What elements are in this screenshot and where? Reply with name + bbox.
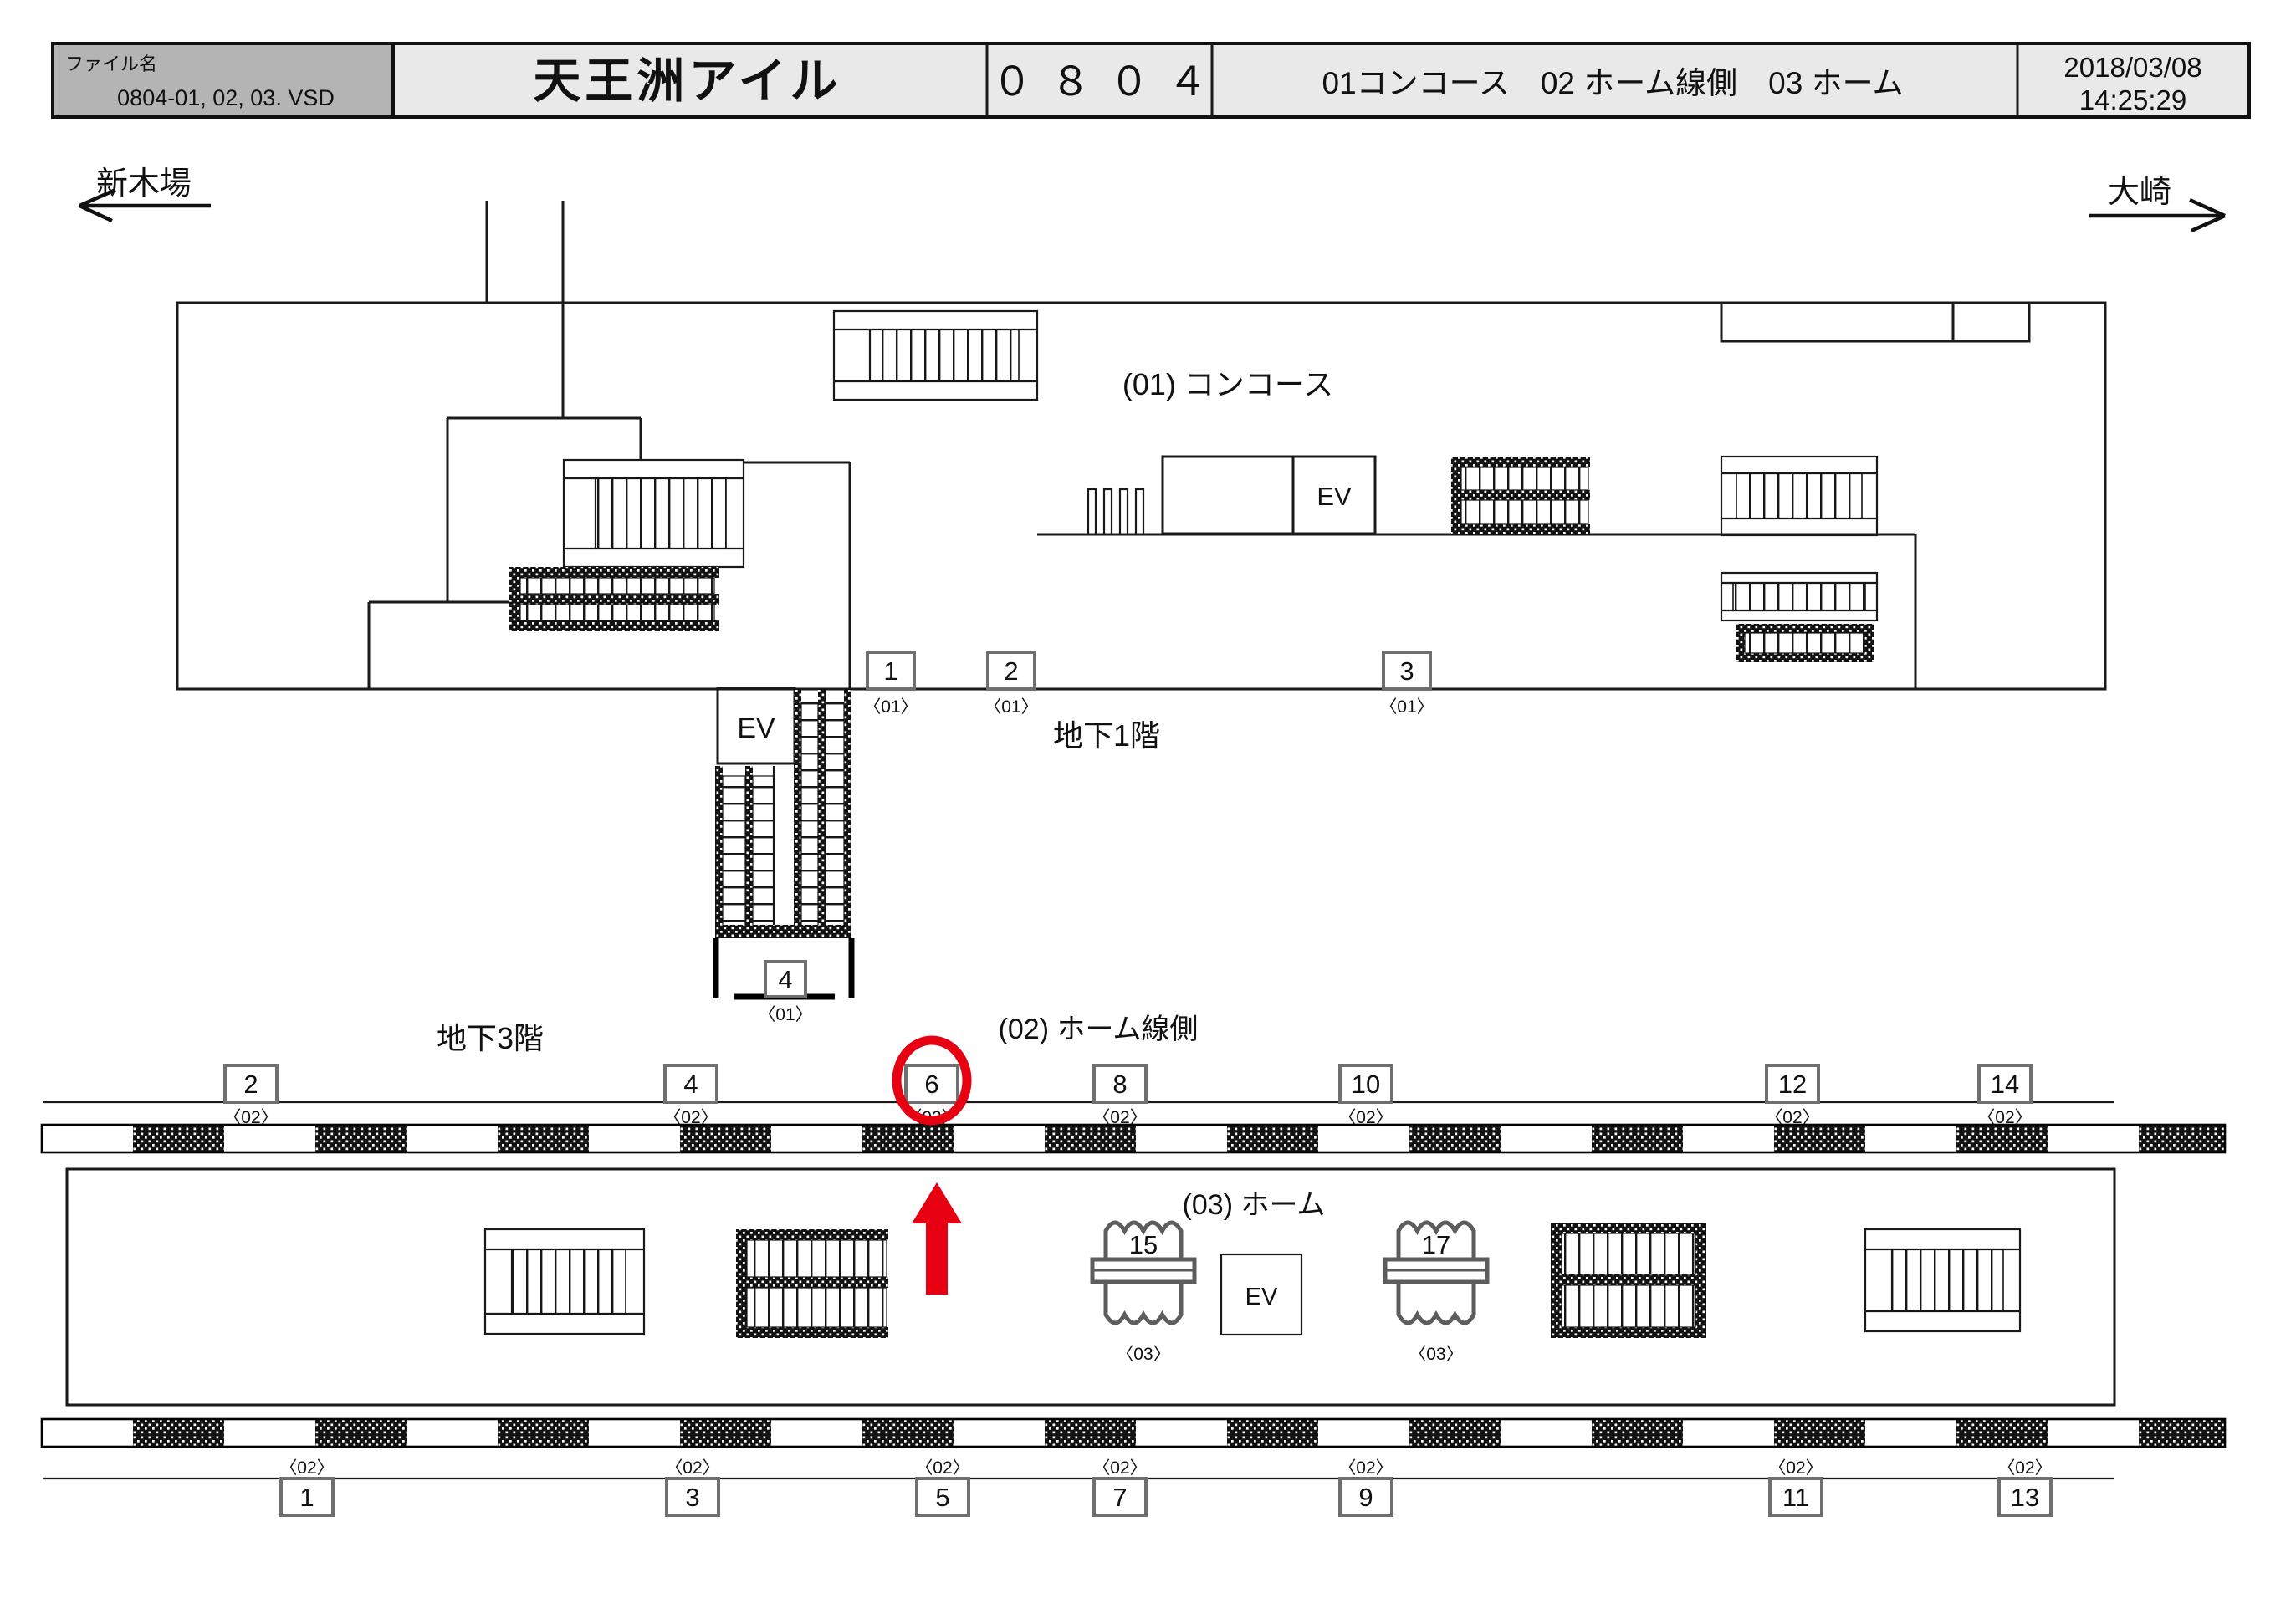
file-name-label: ファイル名	[65, 54, 157, 74]
marker-02-2: 2 〈02〉	[223, 1065, 278, 1127]
marker-02-8: 8 〈02〉	[1092, 1065, 1147, 1127]
svg-text:14: 14	[1991, 1070, 2019, 1099]
marker-02-14: 14 〈02〉	[1977, 1065, 2032, 1127]
svg-text:4: 4	[778, 965, 792, 994]
platform-escalator-right	[1551, 1223, 1706, 1338]
svg-text:〈02〉: 〈02〉	[1997, 1458, 2052, 1478]
marker-02-13: 〈02〉 13	[1997, 1458, 2052, 1515]
marker-03-17: 17 〈03〉	[1385, 1223, 1487, 1364]
svg-text:13: 13	[2011, 1483, 2039, 1512]
svg-text:〈02〉: 〈02〉	[915, 1458, 969, 1478]
direction-left-label: 新木場	[96, 166, 192, 202]
svg-text:〈02〉: 〈02〉	[1338, 1108, 1393, 1127]
print-date: 2018/03/08	[2063, 52, 2201, 83]
marker-02-9: 〈02〉 9	[1338, 1458, 1393, 1515]
marker-02-10: 10 〈02〉	[1338, 1065, 1393, 1127]
svg-text:3: 3	[685, 1483, 699, 1512]
marker-03-15-number: 15	[1129, 1230, 1158, 1259]
floorplan-canvas: ファイル名 0804-01, 02, 03. VSD 天王洲アイル ０８０４ 0…	[0, 0, 2296, 1624]
marker-02-12: 12 〈02〉	[1765, 1065, 1819, 1127]
corridor-ev-label: EV	[737, 712, 775, 744]
direction-right-label: 大崎	[2108, 175, 2171, 210]
marker-02-4: 4 〈02〉	[663, 1065, 718, 1127]
b1-escalator-midleft	[509, 567, 719, 631]
label-platform: (03) ホーム	[1183, 1189, 1326, 1221]
marker-01-4: 4 〈01〉	[758, 962, 812, 1024]
platform-stair-left	[485, 1229, 644, 1334]
marker-02-11: 〈02〉 11	[1768, 1458, 1823, 1515]
svg-text:〈01〉: 〈01〉	[1379, 697, 1434, 717]
print-time: 14:25:29	[2079, 84, 2186, 115]
svg-text:4: 4	[683, 1070, 698, 1099]
station-title: 天王洲アイル	[533, 54, 841, 108]
marker-03-15: 15 〈03〉	[1092, 1223, 1194, 1364]
b1-stair-right	[1721, 457, 1877, 535]
direction-left: 新木場	[79, 166, 211, 221]
marker-01-3: 3 〈01〉	[1379, 652, 1434, 717]
svg-text:〈02〉: 〈02〉	[279, 1458, 334, 1478]
area-legend: 01コンコース 02 ホーム線側 03 ホーム	[1322, 66, 1904, 100]
svg-text:2: 2	[1004, 656, 1018, 686]
svg-text:〈02〉: 〈02〉	[1768, 1458, 1823, 1478]
svg-text:7: 7	[1112, 1483, 1127, 1512]
svg-text:1: 1	[299, 1483, 314, 1512]
svg-text:11: 11	[1782, 1483, 1809, 1512]
b1-stair-lower-right	[1721, 573, 1877, 620]
svg-text:〈02〉: 〈02〉	[1092, 1458, 1147, 1478]
label-concourse: (01) コンコース	[1122, 367, 1333, 401]
svg-text:3: 3	[1399, 656, 1414, 686]
svg-text:〈01〉: 〈01〉	[984, 697, 1038, 717]
b1-concourse-outline	[177, 201, 2105, 689]
platform-elevator: EV	[1221, 1254, 1301, 1335]
marker-02-5: 〈02〉 5	[915, 1458, 969, 1515]
highlight-arrow-up-icon	[912, 1182, 962, 1295]
svg-text:〈02〉: 〈02〉	[665, 1458, 719, 1478]
marker-03-17-number: 17	[1422, 1230, 1450, 1259]
svg-text:8: 8	[1112, 1070, 1127, 1099]
svg-text:〈02〉: 〈02〉	[223, 1108, 278, 1127]
svg-text:12: 12	[1778, 1070, 1807, 1099]
station-diagram-page: ファイル名 0804-01, 02, 03. VSD 天王洲アイル ０８０４ 0…	[0, 0, 2296, 1624]
top-right-room-small	[1953, 303, 2029, 341]
svg-text:〈01〉: 〈01〉	[863, 697, 918, 717]
platform-box	[67, 1169, 2114, 1405]
svg-text:10: 10	[1352, 1070, 1380, 1099]
svg-text:〈02〉: 〈02〉	[663, 1108, 718, 1127]
svg-text:〈02〉: 〈02〉	[1977, 1108, 2032, 1127]
svg-text:1: 1	[883, 656, 897, 686]
platform-escalator-left	[736, 1229, 888, 1338]
platform-stair-right	[1865, 1229, 2020, 1331]
b1-stair-midleft	[564, 460, 744, 567]
label-b3: 地下3階	[437, 1021, 544, 1055]
svg-text:5: 5	[935, 1483, 949, 1512]
file-name-value: 0804-01, 02, 03. VSD	[117, 85, 335, 110]
b1-elevator-block: EV	[1163, 457, 1375, 534]
svg-text:9: 9	[1358, 1483, 1373, 1512]
label-lineside: (02) ホーム線側	[999, 1014, 1199, 1045]
top-right-room	[1721, 303, 1953, 341]
station-code: ０８０４	[992, 60, 1226, 105]
marker-01-1: 1 〈01〉	[863, 652, 918, 717]
b1-ticket-gates	[1088, 489, 1143, 534]
label-b1: 地下1階	[1053, 718, 1160, 753]
svg-text:〈02〉: 〈02〉	[1092, 1108, 1147, 1127]
track-strip-top	[42, 1125, 2225, 1152]
b1-ev-label: EV	[1317, 482, 1352, 511]
corridor-shaft: EV	[715, 688, 851, 998]
track-strip-bottom	[42, 1419, 2225, 1447]
marker-01-2: 2 〈01〉	[984, 652, 1038, 717]
marker-03-15-area: 〈03〉	[1116, 1345, 1170, 1364]
marker-02-3: 〈02〉 3	[665, 1458, 719, 1515]
header-title-block: ファイル名 0804-01, 02, 03. VSD 天王洲アイル ０８０４ 0…	[53, 43, 2249, 117]
b1-escalator-lower-right	[1736, 624, 1874, 662]
marker-02-7: 〈02〉 7	[1092, 1458, 1147, 1515]
svg-text:6: 6	[924, 1070, 938, 1099]
b1-escalator-center	[1451, 457, 1590, 535]
marker-02-1: 〈02〉 1	[279, 1458, 334, 1515]
svg-text:〈02〉: 〈02〉	[1765, 1108, 1819, 1127]
svg-text:2: 2	[243, 1070, 258, 1099]
direction-right: 大崎	[2089, 175, 2225, 231]
svg-text:〈01〉: 〈01〉	[758, 1005, 812, 1024]
svg-text:〈02〉: 〈02〉	[1338, 1458, 1393, 1478]
b1-stair-top	[834, 311, 1037, 400]
marker-03-17-area: 〈03〉	[1409, 1345, 1463, 1364]
platform-ev-label: EV	[1245, 1284, 1278, 1310]
